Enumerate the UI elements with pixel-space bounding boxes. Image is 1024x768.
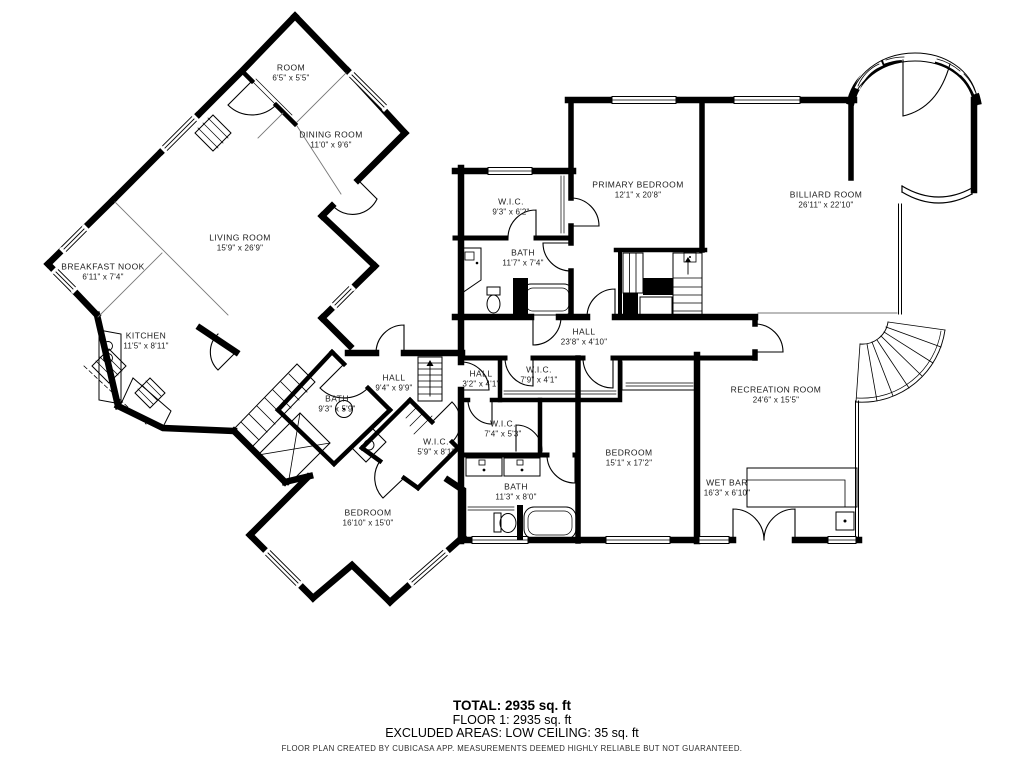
window-markers <box>54 73 856 586</box>
room-dims: 5'9" x 8'1" <box>417 447 454 458</box>
room-name: WET BAR <box>704 478 750 489</box>
room-name: BEDROOM <box>342 508 393 519</box>
room-name: W.I.C. <box>484 419 521 430</box>
room-label-wic-3: W.I.C.7'4" x 5'3" <box>484 419 521 440</box>
room-dims: 11'3" x 8'0" <box>495 492 536 503</box>
room-name: HALL <box>462 369 499 380</box>
room-label-wic-4: W.I.C.5'9" x 8'1" <box>417 437 454 458</box>
room-label-wet-bar: WET BAR16'3" x 6'10" <box>704 478 750 499</box>
room-dims: 15'1" x 17'2" <box>605 458 652 469</box>
room-dims: 6'11" x 7'4" <box>61 272 145 283</box>
room-name: LIVING ROOM <box>209 233 271 244</box>
room-label-wic-1: W.I.C.9'3" x 6'2" <box>492 197 529 218</box>
room-dims: 11'7" x 7'4" <box>502 258 543 269</box>
room-dims: 6'5" x 5'5" <box>272 73 309 84</box>
room-dims: 16'10" x 15'0" <box>342 518 393 529</box>
room-label-bath-upper: BATH11'7" x 7'4" <box>502 248 543 269</box>
staircase-diagonal-icon <box>233 364 330 485</box>
room-name: HALL <box>375 373 412 384</box>
room-name: W.I.C. <box>492 197 529 208</box>
room-dims: 9'4" x 9'9" <box>375 383 412 394</box>
room-label-living-room: LIVING ROOM15'9" x 26'9" <box>209 233 271 254</box>
room-dims: 9'3" x 6'2" <box>492 207 529 218</box>
room-dims: 16'3" x 6'10" <box>704 488 750 499</box>
disclaimer-text: FLOOR PLAN CREATED BY CUBICASA APP. MEAS… <box>282 744 743 753</box>
excluded-area-text: EXCLUDED AREAS: LOW CEILING: 35 sq. ft <box>385 726 639 740</box>
room-dims: 15'9" x 26'9" <box>209 243 271 254</box>
room-label-hall-long: HALL23'8" x 4'10" <box>561 327 607 348</box>
open-rail-lines <box>856 204 902 538</box>
room-label-bedroom-right: BEDROOM15'1" x 17'2" <box>605 448 652 469</box>
room-label-dining-room: DINING ROOM11'0" x 9'6" <box>299 130 363 151</box>
floor-plan-page: ROOM6'5" x 5'5" DINING ROOM11'0" x 9'6" … <box>0 0 1024 768</box>
floor1-area-text: FLOOR 1: 2935 sq. ft <box>453 713 572 727</box>
wet-bar-counter <box>747 468 857 530</box>
primary-closet-stair-block <box>616 250 705 315</box>
opening-lines <box>98 73 897 317</box>
arched-opening <box>902 186 972 203</box>
room-label-recreation-room: RECREATION ROOM24'6" x 15'5" <box>731 385 822 406</box>
room-label-bath-diagonal: BATH9'3" x 5'9" <box>318 394 355 415</box>
bay-window-arc <box>851 53 977 105</box>
room-label-bedroom-left: BEDROOM16'10" x 15'0" <box>342 508 393 529</box>
room-label-primary-bedroom: PRIMARY BEDROOM12'1" x 20'8" <box>592 180 683 201</box>
room-label-kitchen: KITCHEN11'5" x 8'11" <box>123 331 168 352</box>
room-name: BATH <box>502 248 543 259</box>
left-wing-outer-walls <box>48 16 463 602</box>
floor-plan-drawing <box>0 0 1024 768</box>
room-name: BATH <box>318 394 355 405</box>
total-area-text: TOTAL: 2935 sq. ft <box>453 698 571 713</box>
staircase-curved-icon <box>856 322 945 402</box>
room-dims: 7'4" x 5'3" <box>484 429 521 440</box>
room-dims: 23'8" x 4'10" <box>561 337 607 348</box>
room-label-billiard-room: BILLIARD ROOM26'11" x 22'10" <box>790 190 862 211</box>
fireplace-icon <box>195 115 231 151</box>
room-label-wic-2: W.I.C.7'9" x 4'1" <box>520 365 557 386</box>
room-name: BATH <box>495 482 536 493</box>
room-dims: 7'9" x 4'1" <box>520 375 557 386</box>
room-name: BILLIARD ROOM <box>790 190 862 201</box>
room-name: BEDROOM <box>605 448 652 459</box>
staircase-straight-icon <box>418 357 442 401</box>
room-dims: 11'5" x 8'11" <box>123 341 168 352</box>
room-name: HALL <box>561 327 607 338</box>
room-label-hall-square: HALL9'4" x 9'9" <box>375 373 412 394</box>
room-label-bath-bottom: BATH11'3" x 8'0" <box>495 482 536 503</box>
room-name: W.I.C. <box>520 365 557 376</box>
room-label-hall-small: HALL3'2" x 4'1" <box>462 369 499 390</box>
room-name: ROOM <box>272 63 309 74</box>
room-dims: 26'11" x 22'10" <box>790 200 862 211</box>
room-name: DINING ROOM <box>299 130 363 141</box>
room-dims: 9'3" x 5'9" <box>318 404 355 415</box>
room-name: BREAKFAST NOOK <box>61 262 145 273</box>
room-name: RECREATION ROOM <box>731 385 822 396</box>
room-dims: 3'2" x 4'1" <box>462 379 499 390</box>
room-name: PRIMARY BEDROOM <box>592 180 683 191</box>
room-dims: 24'6" x 15'5" <box>731 395 822 406</box>
room-name: KITCHEN <box>123 331 168 342</box>
room-label-breakfast-nook: BREAKFAST NOOK6'11" x 7'4" <box>61 262 145 283</box>
room-name: W.I.C. <box>417 437 454 448</box>
room-dims: 12'1" x 20'8" <box>592 190 683 201</box>
room-label-room: ROOM6'5" x 5'5" <box>272 63 309 84</box>
room-dims: 11'0" x 9'6" <box>299 140 363 151</box>
